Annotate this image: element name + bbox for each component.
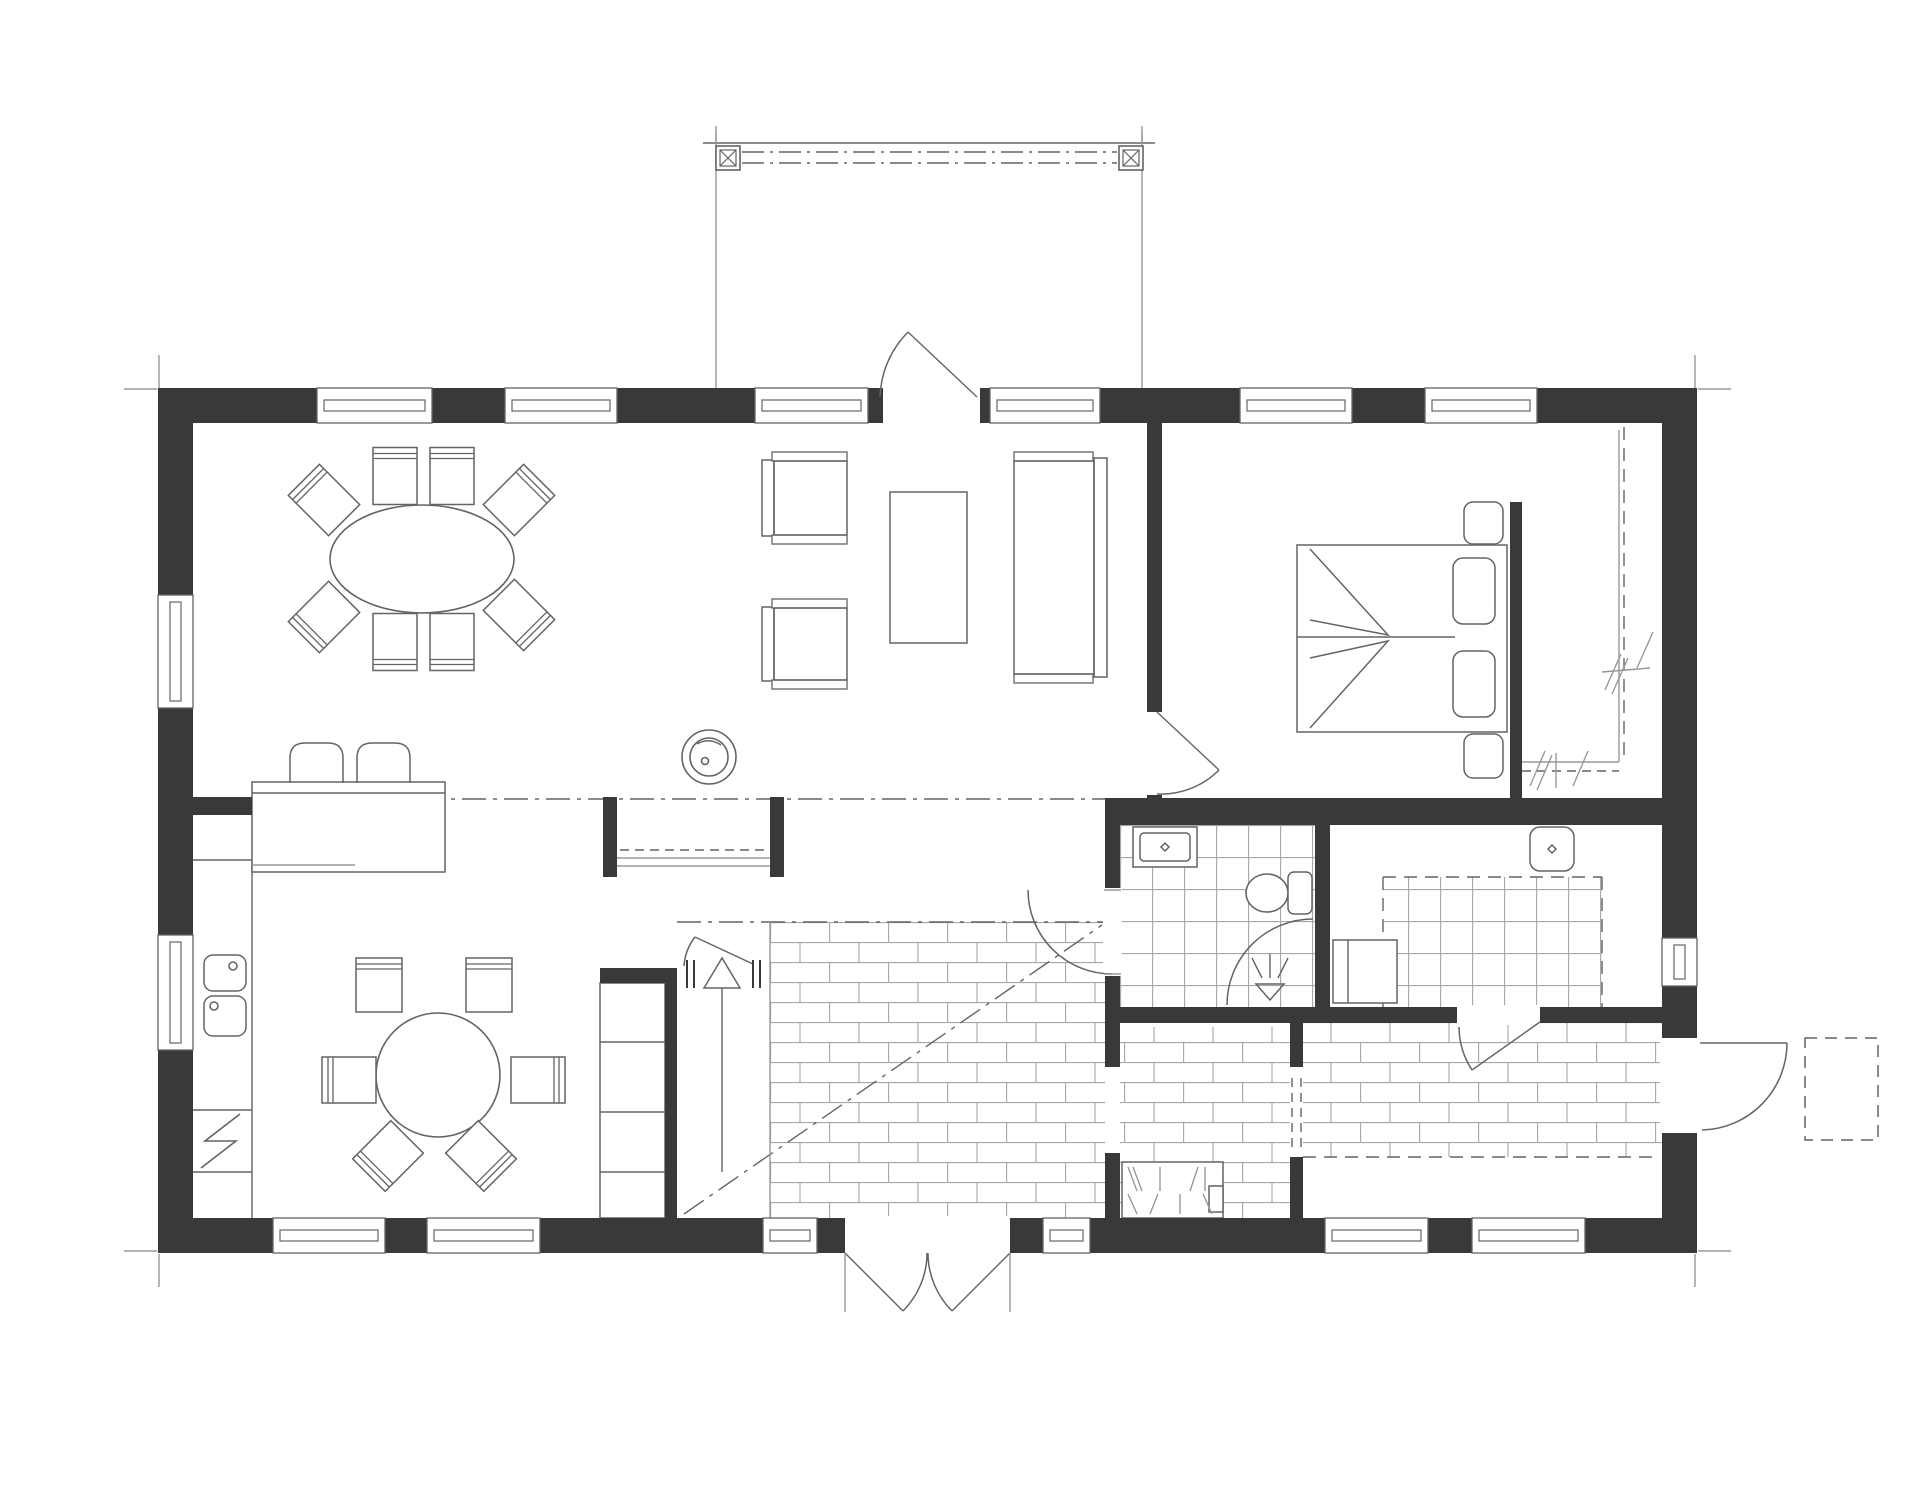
sofa-armrest — [1014, 674, 1093, 683]
living-bedroom-wall — [1147, 423, 1162, 712]
nightstand — [1464, 502, 1503, 544]
window-left — [158, 935, 193, 1050]
window-right — [1662, 938, 1697, 986]
dining-chair-seat — [430, 448, 474, 505]
dining-chair-seat — [430, 614, 474, 671]
toilet-tank — [1288, 872, 1312, 914]
window-top — [505, 388, 617, 423]
window-bottom — [1325, 1218, 1428, 1253]
window-bottom-opening — [1472, 1218, 1585, 1253]
back-door-landing-dashed — [1805, 1038, 1878, 1140]
utility-tile-floor — [1383, 877, 1602, 1007]
utility-sink — [1530, 827, 1574, 871]
window-top — [1240, 388, 1352, 423]
deck-post — [1119, 146, 1143, 170]
toilet-bowl — [1246, 874, 1288, 912]
window-bottom-opening — [427, 1218, 540, 1253]
kitchen-sink-basin — [204, 996, 246, 1036]
kitchen-chair-seat — [511, 1057, 565, 1103]
bathroom-south-wall — [1105, 1007, 1330, 1023]
utility-door-gap — [1457, 1005, 1540, 1025]
floor-plan-page — [0, 0, 1920, 1485]
window-bottom-opening — [763, 1218, 817, 1253]
armchair-back — [762, 460, 774, 536]
window-left-opening — [158, 595, 193, 708]
window-top-opening — [990, 388, 1100, 423]
window-bottom — [427, 1218, 540, 1253]
breakfast-bar-counter — [252, 782, 445, 872]
kitchen-chair — [511, 1057, 565, 1103]
bathroom-sink-basin — [1140, 833, 1190, 861]
window-top-opening — [505, 388, 617, 423]
window-top — [1425, 388, 1537, 423]
window-bottom — [1472, 1218, 1585, 1253]
doormat-tab — [1209, 1186, 1223, 1212]
bed-pillow — [1453, 558, 1495, 624]
window-top-opening — [1425, 388, 1537, 423]
wood-stove-dot — [702, 758, 709, 765]
utility-south-wall-left — [1330, 1007, 1457, 1023]
window-top-opening — [317, 388, 432, 423]
window-left-opening — [158, 935, 193, 1050]
corridor-wall-a — [1290, 1023, 1303, 1067]
sofa-back — [1094, 458, 1107, 677]
kitchen-sink-basin — [204, 955, 246, 991]
kitchen-table — [376, 1013, 500, 1137]
corridor-wall-b — [1290, 1157, 1303, 1218]
chimney-wall-right — [770, 797, 784, 877]
closet-partition-wall — [1510, 502, 1522, 798]
window-top-opening — [1240, 388, 1352, 423]
sofa-armrest — [1014, 452, 1093, 461]
window-top-opening — [755, 388, 868, 423]
dining-table — [330, 505, 514, 613]
dining-chair — [430, 614, 474, 671]
stair-top-wall — [600, 968, 677, 983]
kitchen-chair-seat — [466, 958, 512, 1012]
kitchen-dining-wall-stub — [193, 797, 252, 815]
stair-side-wall — [665, 983, 677, 1218]
back-door-gap — [1660, 1038, 1699, 1133]
armchair-armrest — [772, 452, 847, 461]
dining-chair-seat — [373, 448, 417, 505]
kitchen-sink-dot — [229, 962, 237, 970]
bathroom-door-gap — [1103, 888, 1122, 976]
dining-chair — [430, 448, 474, 505]
window-bottom-opening — [1325, 1218, 1428, 1253]
bathroom-west-wall-c — [1105, 1153, 1120, 1218]
window-bottom — [1043, 1218, 1090, 1253]
hall-brick-floor — [770, 922, 1105, 1218]
entrance-door-gap — [845, 1216, 1010, 1255]
armchair-armrest — [772, 535, 847, 544]
chimney-wall-left — [603, 797, 617, 877]
bedroom-south-wall — [1105, 798, 1662, 825]
window-top — [317, 388, 432, 423]
window-left — [158, 595, 193, 708]
outer-wall-left — [158, 388, 193, 1253]
bathroom-east-wall — [1315, 825, 1330, 1007]
floor-plan-canvas — [0, 0, 1920, 1485]
kitchen-chair — [322, 1057, 376, 1103]
window-top — [755, 388, 868, 423]
stair-cabinet — [600, 983, 665, 1218]
window-top — [990, 388, 1100, 423]
kitchen-chair-seat — [322, 1057, 376, 1103]
window-bottom-opening — [273, 1218, 385, 1253]
kitchen-chair — [466, 958, 512, 1012]
wood-stove-inner — [690, 738, 728, 776]
armchair-back — [762, 607, 774, 681]
armchair-armrest — [772, 599, 847, 608]
deck-post — [716, 146, 740, 170]
dining-chair — [373, 614, 417, 671]
utility-south-wall-right — [1540, 1007, 1662, 1023]
kitchen-chair — [356, 958, 402, 1012]
washing-machine — [1333, 940, 1397, 1003]
deck-door-gap — [883, 386, 980, 425]
kitchen-chair-seat — [356, 958, 402, 1012]
coffee-table — [890, 492, 967, 643]
dining-chair-seat — [373, 614, 417, 671]
east-corridor-brick-floor — [1303, 1023, 1662, 1157]
armchair-armrest — [772, 680, 847, 689]
kitchen-sink-dot — [210, 1002, 218, 1010]
background — [0, 0, 1920, 1485]
window-bottom — [763, 1218, 817, 1253]
window-bottom — [273, 1218, 385, 1253]
nightstand — [1464, 734, 1503, 778]
bed-pillow — [1453, 651, 1495, 717]
dining-chair — [373, 448, 417, 505]
bathroom-west-wall-a — [1105, 825, 1120, 890]
